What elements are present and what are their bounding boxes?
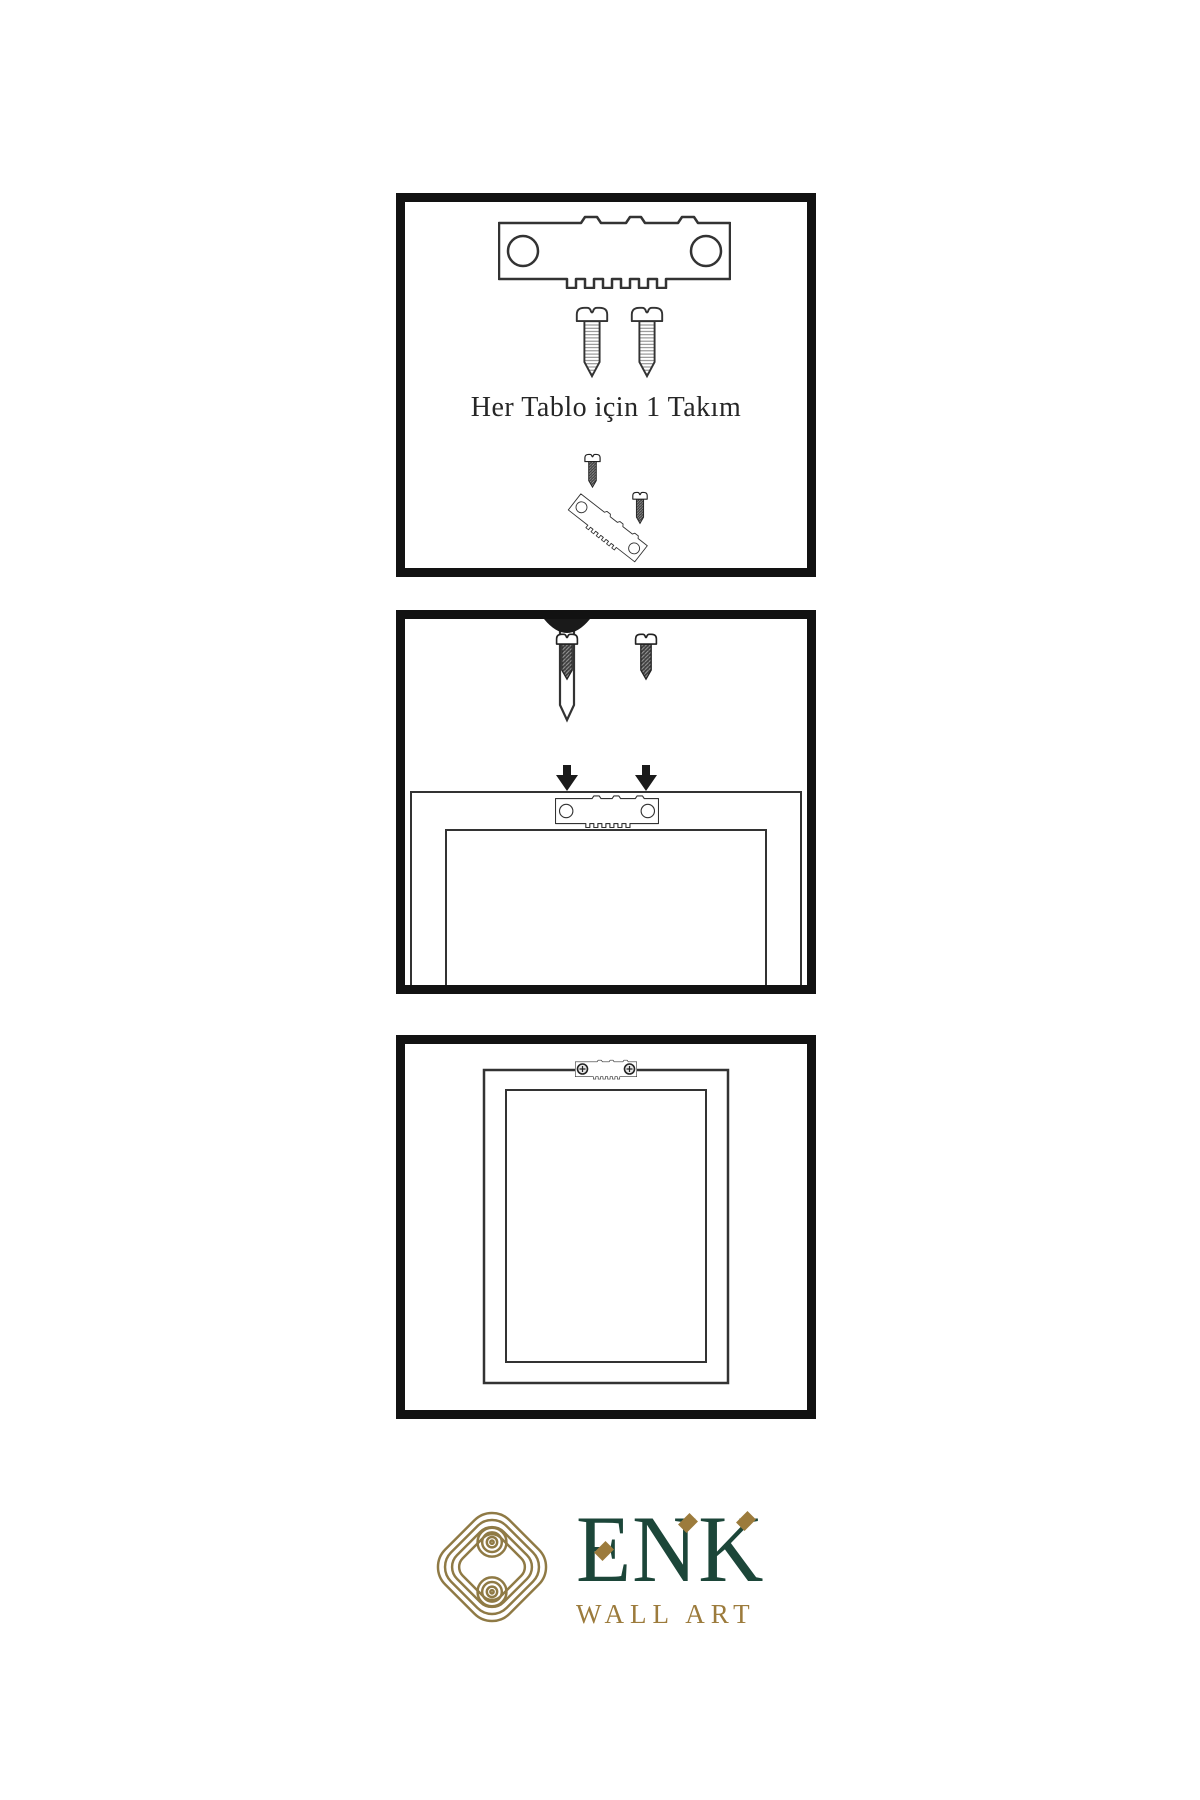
down-arrow-icon <box>635 765 657 791</box>
frame-back-inner-outline <box>446 830 766 985</box>
step3-diagram <box>405 1044 807 1410</box>
logo-text-block: ENK WALL ART <box>576 1505 786 1630</box>
frame-outline <box>484 1070 728 1383</box>
frame-inner-outline <box>506 1090 706 1362</box>
mounted-hanger-icon <box>575 1060 636 1079</box>
small-screw-icon <box>633 492 647 523</box>
step2-diagram <box>405 619 807 985</box>
step2-mounting-panel <box>396 610 816 994</box>
sawtooth-hanger-icon <box>555 796 658 828</box>
logo-tagline: WALL ART <box>576 1599 786 1630</box>
step1-hardware-kit-panel: Her Tablo için 1 Takım <box>396 193 816 577</box>
interlocking-knot-icon <box>430 1499 554 1635</box>
down-arrow-icon <box>556 765 578 791</box>
step3-hung-frame-panel <box>396 1035 816 1419</box>
screw-icon <box>636 634 657 679</box>
step1-caption: Her Tablo için 1 Takım <box>405 392 807 424</box>
brand-logo: ENK WALL ART <box>430 1492 790 1642</box>
sawtooth-hanger-icon <box>499 217 730 288</box>
step1-diagram <box>405 202 807 568</box>
screw-into-hanger-detail <box>566 454 648 564</box>
screw-icon <box>577 308 607 376</box>
screw-icon <box>632 308 662 376</box>
